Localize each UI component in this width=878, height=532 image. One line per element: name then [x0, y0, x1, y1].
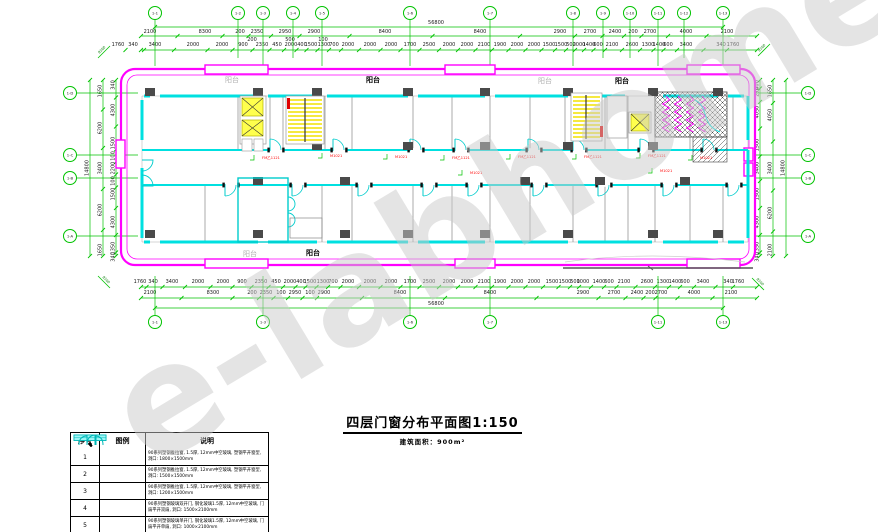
dimension-value: 200 [645, 290, 655, 296]
dimension-value: 1500 [111, 188, 117, 201]
dimension-value: 2950 [289, 290, 302, 296]
dimension-value: 2100 [478, 279, 491, 285]
legend-row-desc: 90系列塑钢玻璃单开门, 钢化玻璃1.5厚, 12mm中空玻璃, 门扇平开单扇,… [145, 517, 268, 532]
balcony-window [116, 140, 125, 168]
legend-row-desc: 90系列塑钢玻璃双开门, 钢化玻璃1.5厚, 12mm中空玻璃, 门扇平开双扇,… [145, 500, 268, 516]
door-leader [440, 155, 444, 160]
door-jamb [740, 183, 742, 188]
corner-note: 8100 [97, 45, 106, 54]
balcony-label: 阳台 [225, 75, 239, 84]
door-jamb [435, 183, 437, 188]
door-jamb [282, 148, 284, 153]
structural-column [713, 230, 723, 238]
dimension-value: 900 [238, 42, 248, 48]
dimension-value: 1500 [305, 42, 318, 48]
balcony-window [687, 65, 740, 74]
dimension-value: 2000 [461, 42, 474, 48]
dimension-value: 2100 [144, 29, 157, 35]
grid-bubble-label: 1-A [805, 234, 812, 239]
dimension-value: 2100 [144, 290, 157, 296]
door-jamb [660, 183, 662, 188]
dimension-value: 1500 [543, 42, 556, 48]
dimension-value: 4300 [111, 104, 117, 117]
door-leader [636, 153, 640, 158]
door-leader [648, 168, 652, 173]
door-code-label: FM乙1121 [648, 153, 666, 158]
structural-column [648, 230, 658, 238]
door-jamb [675, 183, 677, 188]
dimension-value: 2000 [528, 279, 541, 285]
dimension-value: 2900 [318, 290, 331, 296]
column-layer [145, 88, 723, 238]
grid-bubble-label: 1-4 [290, 11, 297, 16]
dimension-value: 2000 [216, 42, 229, 48]
shaft-cell [254, 139, 263, 151]
dimension-value: 4300 [111, 216, 117, 229]
grid-bubble-label: 1-5 [319, 11, 326, 16]
structural-column [403, 142, 413, 150]
dimension-value: 8300 [199, 29, 212, 35]
legend-row: 590系列塑钢玻璃单开门, 钢化玻璃1.5厚, 12mm中空玻璃, 门扇平开单扇… [71, 516, 268, 532]
stair-up-marker [287, 98, 290, 109]
structural-column [253, 88, 263, 96]
legend-row-symbol [99, 517, 145, 532]
dimension-value: 1300 [657, 279, 670, 285]
page-subtitle: 建筑面积：900m² [330, 436, 535, 446]
dimension-value: 1760 [732, 279, 745, 285]
door-code-label: M1021 [470, 171, 482, 175]
door-jamb [480, 183, 482, 188]
door-jamb [545, 183, 547, 188]
structural-column [403, 230, 413, 238]
door-code-label: FM乙1121 [518, 154, 536, 159]
dimension-value: 1650 [768, 85, 774, 98]
dimension-value: 600 [663, 42, 673, 48]
door-code-label: M1021 [700, 156, 712, 160]
dimension-value: 14800 [85, 160, 91, 176]
door-jamb [304, 183, 306, 188]
shaft-cell [242, 139, 252, 151]
legend-row-symbol [99, 483, 145, 499]
dimension-value: 6200 [768, 207, 774, 220]
partition-walls-lower [205, 185, 723, 242]
balcony-label: 阳台 [366, 75, 380, 84]
dimension-value: 340 [148, 279, 158, 285]
dimension-value: 340 [716, 42, 726, 48]
dimension-value: 2000 [364, 42, 377, 48]
dimension-tick [124, 48, 128, 52]
corner-note: 8100 [757, 43, 766, 52]
elevator-shaft-left [240, 96, 266, 151]
corner-note: 8100 [756, 277, 765, 286]
dimension-value: 2000 [528, 42, 541, 48]
dimension-value: 2000 [364, 279, 377, 285]
grid-bubble-label: 1-2 [235, 11, 242, 16]
grid-bubble-label: 1-12 [680, 11, 689, 16]
structural-column [403, 88, 413, 96]
door-jamb [370, 183, 372, 188]
balcony-label: 阳台 [615, 76, 629, 85]
dimension-value: 1500 [304, 279, 317, 285]
dimension-value: 2000 [342, 279, 355, 285]
structural-column [563, 230, 573, 238]
dimension-value: 4000 [688, 290, 701, 296]
dimension-value: 2000 [285, 42, 298, 48]
dimension-value: 700 [329, 42, 339, 48]
dimension-value: 340 [128, 42, 138, 48]
grid-bubble-label: 1-9 [600, 11, 607, 16]
dimension-value: 2400 [631, 290, 644, 296]
door-jamb [267, 148, 269, 153]
elevator-lobby [607, 96, 627, 138]
structural-column [145, 230, 155, 238]
grid-bubble-label: 1-3 [260, 320, 267, 325]
grid-bubble-label: 1-7 [487, 320, 494, 325]
door-jamb [289, 183, 291, 188]
dimension-value: 1650 [98, 244, 104, 257]
door-leader [572, 154, 576, 159]
dimension-value: 2000 [443, 279, 456, 285]
door-code-label: FM乙1121 [452, 155, 470, 160]
structural-column [312, 88, 322, 96]
dimension-value: 8400 [394, 290, 407, 296]
structural-column [595, 177, 605, 185]
door-jamb [525, 148, 527, 153]
dimension-value: 3400 [98, 162, 104, 175]
elevator-shaft-right [607, 96, 651, 138]
corner-note: 8100 [102, 275, 111, 284]
dimension-value: 2100 [768, 244, 774, 257]
legend-row-symbol [99, 500, 145, 516]
dimension-value: 600 [604, 279, 614, 285]
door-jamb [530, 183, 532, 188]
legend-row-desc: 90系列塑钢推拉窗, 1.5厚, 12mm中空玻璃, 塑钢平开窗型, 洞口: 1… [145, 466, 268, 482]
door-jamb [725, 183, 727, 188]
dimension-value: 2000 [217, 279, 230, 285]
grid-bubble-label: 1-B [805, 176, 812, 181]
door-jamb [610, 183, 612, 188]
dimension-value: 2700 [644, 29, 657, 35]
legend-row-symbol [99, 449, 145, 465]
dimension-value: 2000 [385, 42, 398, 48]
dimension-value: 2900 [577, 290, 590, 296]
dimension-value: 3400 [166, 279, 179, 285]
dimension-value: 2100 [725, 290, 738, 296]
grid-bubble-label: 1-6 [407, 320, 414, 325]
dimension-value: 3400 [697, 279, 710, 285]
dimension-value: 8300 [207, 290, 220, 296]
staircase-layer [286, 93, 603, 144]
drawing-sheet: 5680021008300200235029502900840084002900… [0, 0, 878, 532]
door-leader [383, 154, 387, 159]
dimension-value: 600 [680, 279, 690, 285]
legend-row: 490系列塑钢玻璃双开门, 钢化玻璃1.5厚, 12mm中空玻璃, 门扇平开双扇… [71, 499, 268, 516]
legend-row-no: 1 [71, 449, 99, 465]
dimension-value: 3400 [680, 42, 693, 48]
title-block: 四层门窗分布平面图1:150 建筑面积：900m² [330, 412, 535, 446]
grid-bubble-label: 1-10 [626, 11, 635, 16]
legend-header-desc: 说明 [145, 433, 268, 449]
dimension-value: 1760 [727, 42, 740, 48]
legend-row-no: 4 [71, 500, 99, 516]
legend-row-symbol [99, 466, 145, 482]
west-entry-doors [142, 160, 153, 186]
legend-single-door-symbol [71, 433, 111, 447]
dimension-value: 200 [235, 29, 245, 35]
door-code-label: M1021 [660, 169, 672, 173]
grid-bubble-label: 1-D [805, 91, 812, 96]
dimension-value: 900 [237, 279, 247, 285]
cyan-room [238, 178, 322, 242]
balcony-label: 阳台 [243, 249, 257, 258]
grid-bubble-label: 1-C [805, 153, 812, 158]
balcony-window [455, 259, 495, 268]
dimension-value: 2000 [284, 279, 297, 285]
dimension-value: 1900 [494, 279, 507, 285]
structural-column [480, 230, 490, 238]
grid-bubble-label: 1-D [67, 91, 74, 96]
dimension-value: 2600 [641, 279, 654, 285]
dimension-value: 2350 [260, 290, 273, 296]
dimension-value: 2000 [187, 42, 200, 48]
double-door-arcs [142, 160, 153, 186]
legend-row: 190系列塑钢推拉窗, 1.5厚, 12mm中空玻璃, 塑钢平开窗型, 洞口: … [71, 449, 268, 465]
dimension-value: 2700 [584, 29, 597, 35]
grid-bubble-label: 1-3 [260, 11, 267, 16]
page-title: 四层门窗分布平面图1:150 [343, 412, 521, 434]
dimension-value: 700 [328, 279, 338, 285]
door-leader [506, 154, 510, 159]
dimension-value: 8400 [474, 29, 487, 35]
dimension-value: 4000 [680, 29, 693, 35]
grid-bubble-label: 1-C [67, 153, 74, 158]
dimension-layer: 5680021008300200235029502900840084002900… [85, 20, 789, 310]
door-jamb [355, 183, 357, 188]
dimension-value: 1760 [112, 42, 125, 48]
dimension-value: 2900 [554, 29, 567, 35]
dimension-value: 6200 [98, 122, 104, 135]
door-jamb [585, 148, 587, 153]
dimension-value: 100 [276, 290, 286, 296]
structural-column [480, 142, 490, 150]
dimension-value: 2000 [511, 42, 524, 48]
dimension-value: 6200 [98, 204, 104, 217]
grid-bubble-label: 1-13 [719, 320, 728, 325]
door-code-label: M1021 [395, 155, 407, 159]
dimension-value: 2900 [308, 29, 321, 35]
dimension-value: 2100 [606, 42, 619, 48]
dimension-value: 600 [593, 42, 603, 48]
dimension-value: 340 [111, 80, 117, 90]
grid-bubble-label: 1-8 [570, 11, 577, 16]
structural-column [520, 177, 530, 185]
door-code-label: FM乙1121 [262, 155, 280, 160]
dimension-value: 2350 [256, 42, 269, 48]
dimension-value: 2000 [385, 279, 398, 285]
room-door-arcs [288, 197, 295, 227]
legend-row-desc: 90系列塑钢推拉窗, 1.5厚, 12mm中空玻璃, 塑钢平开窗型, 洞口: 1… [145, 483, 268, 499]
grid-bubble-label: 1-B [67, 176, 74, 181]
door-jamb [330, 148, 332, 153]
dimension-value: 340 [111, 252, 117, 262]
dimension-value: 100 [305, 290, 315, 296]
grid-bubble-label: 1-A [67, 234, 74, 239]
door-jamb [420, 183, 422, 188]
legend-table: 序号 图例 说明 190系列塑钢推拉窗, 1.5厚, 12mm中空玻璃, 塑钢平… [70, 432, 269, 532]
dimension-value: 1760 [134, 279, 147, 285]
door-leader [250, 155, 254, 160]
grid-bubble-label: 1-1 [152, 11, 159, 16]
legend-row-no: 3 [71, 483, 99, 499]
balcony-window [205, 65, 268, 74]
dimension-value: 1650 [98, 85, 104, 98]
door-leader [458, 170, 462, 175]
door-jamb [345, 148, 347, 153]
structural-column [680, 177, 690, 185]
hatched-area [655, 92, 727, 162]
dimension-value: 3400 [768, 162, 774, 175]
dimension-value: 8400 [379, 29, 392, 35]
balcony-window [205, 259, 268, 268]
legend-row-desc: 90系列塑钢推拉窗, 1.5厚, 12mm中空玻璃, 塑钢平开窗型, 洞口: 1… [145, 449, 268, 465]
door-jamb [637, 148, 639, 153]
balcony-label: 阳台 [538, 76, 552, 85]
structural-column [253, 230, 263, 238]
balcony-label: 阳台 [306, 248, 320, 257]
dimension-value: 2100 [618, 279, 631, 285]
structural-column [563, 142, 573, 150]
legend-row: 390系列塑钢推拉窗, 1.5厚, 12mm中空玻璃, 塑钢平开窗型, 洞口: … [71, 482, 268, 499]
door-jamb [222, 183, 224, 188]
legend-body: 190系列塑钢推拉窗, 1.5厚, 12mm中空玻璃, 塑钢平开窗型, 洞口: … [71, 449, 268, 532]
door-leader [318, 153, 322, 158]
dimension-value: 2400 [609, 29, 622, 35]
stair-up-marker [600, 126, 603, 137]
dimension-value: 2350 [251, 29, 264, 35]
door-leader [688, 155, 692, 160]
dimension-value: 2500 [423, 279, 436, 285]
dimension-value: 2700 [655, 290, 668, 296]
door-jamb [467, 148, 469, 153]
dimension-value: 2000 [192, 279, 205, 285]
dimension-value: 14800 [781, 160, 787, 176]
grid-bubble-label: 1-6 [407, 11, 414, 16]
structural-column [145, 88, 155, 96]
door-jamb [422, 148, 424, 153]
dimension-value: 2100 [721, 29, 734, 35]
structural-column [340, 230, 350, 238]
dimension-value: 4050 [768, 109, 774, 122]
structural-column [480, 88, 490, 96]
dimension-value: 1000 [577, 279, 590, 285]
door-jamb [540, 148, 542, 153]
dimension-value: 2000 [443, 42, 456, 48]
dimension-value: 2000 [511, 279, 524, 285]
legend-row-no: 2 [71, 466, 99, 482]
dimension-value: 56800 [428, 20, 444, 26]
dimension-value: 2700 [608, 290, 621, 296]
grid-bubble-label: 1-11 [654, 11, 663, 16]
balcony-window [445, 65, 495, 74]
dimension-value: 2000 [342, 42, 355, 48]
dimension-value: 2000 [461, 279, 474, 285]
dimension-value: 1500 [546, 279, 559, 285]
grid-bubble-label: 1-1 [152, 320, 159, 325]
structural-column [340, 177, 350, 185]
grid-bubble-label: 1-13 [719, 11, 728, 16]
dimension-value: 1900 [494, 42, 507, 48]
grid-bubble-label: 1-7 [487, 11, 494, 16]
dimension-value: 2350 [255, 279, 268, 285]
dimension-value: 2600 [626, 42, 639, 48]
legend-row: 290系列塑钢推拉窗, 1.5厚, 12mm中空玻璃, 塑钢平开窗型, 洞口: … [71, 465, 268, 482]
grid-bubble-label: 1-11 [654, 320, 663, 325]
door-code-label: FM乙1121 [584, 154, 602, 159]
dimension-value: 2950 [279, 29, 292, 35]
dimension-value: 56800 [428, 301, 444, 307]
door-jamb [465, 183, 467, 188]
dimension-value: 450 [271, 279, 281, 285]
dimension-value: 2100 [478, 42, 491, 48]
dimension-value: 2500 [423, 42, 436, 48]
dimension-value: 450 [272, 42, 282, 48]
door-jamb [452, 148, 454, 153]
door-code-label: M1021 [330, 154, 342, 158]
legend-row-no: 5 [71, 517, 99, 532]
structural-column [648, 142, 658, 150]
dimension-value: 200 [247, 290, 257, 296]
